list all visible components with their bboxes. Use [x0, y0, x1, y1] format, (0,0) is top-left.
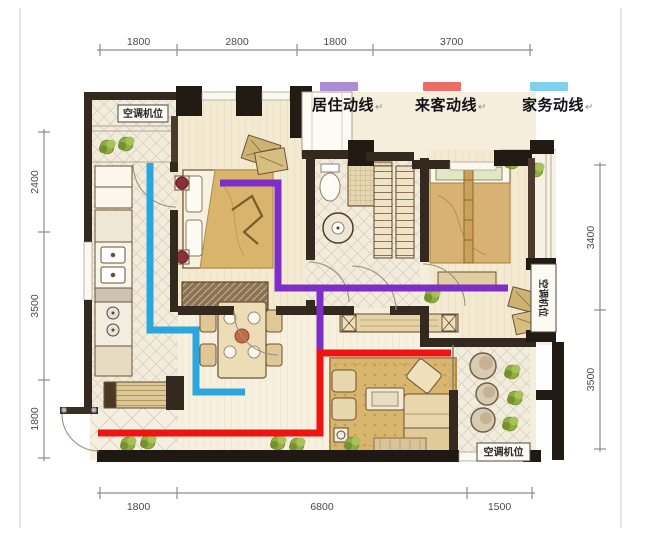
room-label-text: 空调机位	[123, 107, 163, 120]
dim-label: 2800	[225, 36, 249, 48]
legend-item-guest: 来客动线↵	[415, 82, 510, 115]
closet	[396, 166, 414, 258]
legend-swatch-resident-line	[320, 82, 358, 91]
dim-label: 1800	[29, 407, 41, 431]
legend-label-resident: 居住动线↵	[312, 94, 407, 115]
dim-label: 1500	[488, 501, 512, 513]
closet	[374, 166, 392, 258]
legend-text: 家务动线	[522, 97, 584, 114]
dim-label: 1800	[127, 501, 151, 513]
dim-label: 3500	[585, 368, 597, 392]
legend-label-housework: 家务动线↵	[522, 94, 617, 115]
return-mark-icon: ↵	[478, 102, 487, 113]
floor-plan-figure: 1800280018003700180068001500240035001800…	[0, 0, 655, 536]
tv-console	[340, 314, 458, 332]
legend-item-housework: 家务动线↵	[522, 82, 617, 115]
room-label-ac-2: 空调机位	[477, 443, 530, 461]
dim-label: 1800	[127, 36, 151, 48]
room-label-ac-0: 空调机位	[118, 105, 168, 122]
legend-text: 来客动线	[415, 97, 477, 114]
legend-item-resident: 居住动线↵	[312, 82, 407, 115]
legend-text: 居住动线	[312, 97, 374, 114]
dim-label: 3700	[440, 36, 464, 48]
dim-label: 3400	[585, 226, 597, 250]
legend-label-guest: 来客动线↵	[415, 94, 510, 115]
legend-swatch-guest-line	[423, 82, 461, 91]
dim-bottom: 180068001500	[97, 487, 535, 513]
dim-label: 1800	[323, 36, 347, 48]
floor-plan-svg: 1800280018003700180068001500240035001800…	[0, 0, 655, 536]
dim-right: 34003500	[585, 162, 606, 452]
room-label-ac-1: 空调机位	[531, 264, 556, 332]
dim-label: 3500	[29, 294, 41, 318]
dim-label: 6800	[310, 501, 334, 513]
armchair	[332, 370, 356, 392]
room-label-text: 空调机位	[484, 446, 524, 459]
armchair	[332, 398, 356, 420]
dim-top: 1800280018003700	[97, 36, 533, 56]
dim-label: 2400	[29, 170, 41, 194]
dim-left: 240035001800	[29, 129, 50, 461]
return-mark-icon: ↵	[375, 102, 384, 113]
return-mark-icon: ↵	[585, 102, 594, 113]
legend-swatch-housework-line	[530, 82, 568, 91]
room-label-text: 空调机位	[537, 279, 549, 318]
